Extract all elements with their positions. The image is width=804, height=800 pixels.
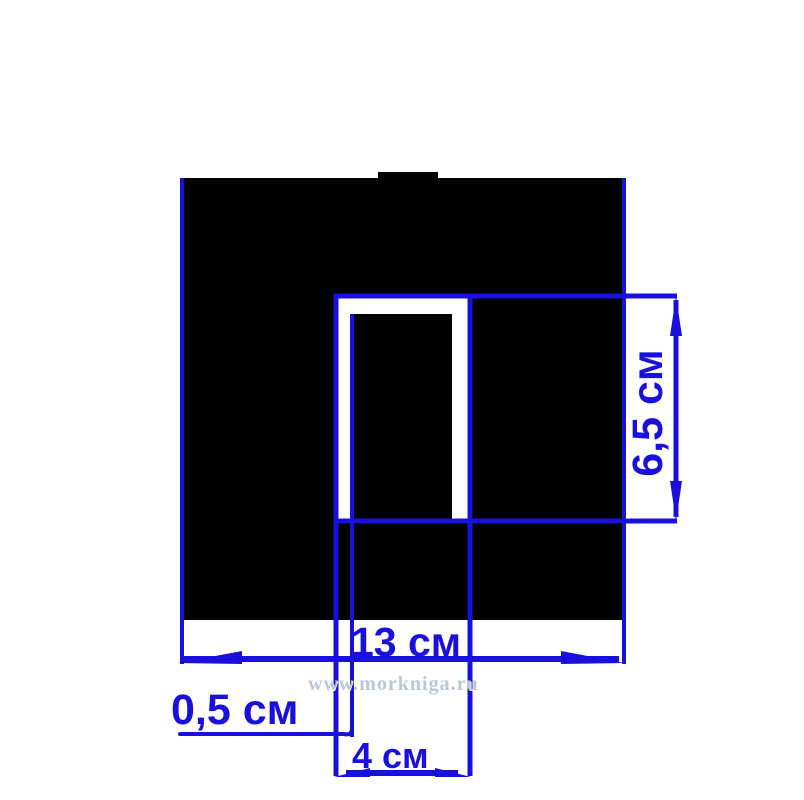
plate-top-notch <box>378 172 438 180</box>
slot-depth-label: 6,5 см <box>627 343 679 483</box>
wall-gap-label: 0,5 см <box>171 689 298 732</box>
dim-slot-depth-arrow-top <box>670 296 682 336</box>
slot-width-label: 4 см <box>352 738 429 774</box>
diagram-canvas: 13 см 6,5 см 0,5 см 4 см www.morkniga.ru <box>0 0 804 800</box>
slot-inner-block <box>352 314 452 521</box>
plate-width-label: 13 см <box>351 622 461 663</box>
dim-slot-depth-arrow-bottom <box>670 481 682 521</box>
watermark-text: www.morkniga.ru <box>308 673 479 696</box>
dim-slot-width-arrow-right <box>435 768 471 777</box>
